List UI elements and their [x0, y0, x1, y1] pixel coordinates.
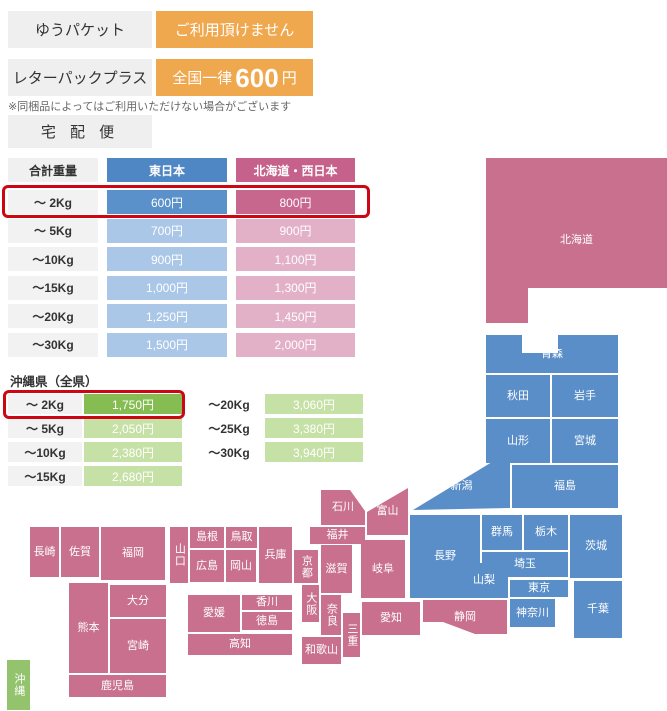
map-region-fukushima: 福島	[512, 465, 618, 508]
map-region-label: 宮崎	[127, 640, 149, 653]
map-region-yamaguchi: 山口	[170, 527, 188, 583]
map-region-label: 北海道	[560, 234, 593, 247]
map-region-label: 岩手	[574, 390, 596, 403]
map-region-tokushima: 徳島	[242, 612, 292, 630]
map-region-kumamoto: 熊本	[69, 583, 108, 673]
map-region-fukuoka: 福岡	[101, 527, 165, 580]
map-region-label: 岐阜	[372, 563, 394, 576]
map-region-label: 長崎	[34, 546, 56, 559]
map-region-fukui: 福井	[310, 527, 365, 544]
map-region-label: 奈良	[325, 603, 338, 627]
map-region-label: 群馬	[491, 526, 513, 539]
map-region-kyoto: 京都	[294, 550, 318, 583]
map-region-nara: 奈良	[321, 595, 341, 635]
map-region-label: 静岡	[454, 611, 476, 624]
japan-map: 北海道青森秋田岩手山形宮城福島新潟群馬栃木茨城埼玉山梨東京神奈川千葉長野富山石川…	[0, 0, 667, 711]
map-region-saga: 佐賀	[61, 527, 99, 577]
map-region-label: 佐賀	[69, 546, 91, 559]
map-region-label: 青森	[541, 348, 563, 361]
map-region-okayama: 岡山	[226, 550, 256, 582]
map-region-hokkaido: 北海道	[486, 158, 667, 323]
map-region-label: 大分	[127, 595, 149, 608]
map-region-label: 高知	[229, 638, 251, 651]
map-region-iwate: 岩手	[552, 375, 618, 417]
map-region-label: 徳島	[256, 615, 278, 628]
map-region-kanagawa: 神奈川	[510, 599, 555, 627]
map-region-label: 埼玉	[514, 558, 536, 571]
map-region-shimane: 島根	[190, 527, 224, 548]
map-region-label: 兵庫	[265, 549, 287, 562]
map-region-label: 鳥取	[231, 531, 253, 544]
map-region-label: 滋賀	[326, 563, 348, 576]
map-region-ibaraki: 茨城	[570, 515, 622, 578]
map-region-ishikawa: 石川	[321, 490, 365, 525]
map-region-ehime: 愛媛	[188, 595, 240, 632]
map-region-akita: 秋田	[486, 375, 550, 417]
map-region-label: 新潟	[451, 480, 473, 493]
map-region-shizuoka: 静岡	[423, 600, 507, 634]
map-region-label: 三重	[345, 623, 358, 647]
map-region-label: 和歌山	[305, 644, 338, 657]
map-region-label: 香川	[256, 596, 278, 609]
map-region-label: 東京	[528, 582, 550, 595]
map-region-label: 福島	[554, 480, 576, 493]
map-region-label: 鹿児島	[101, 680, 134, 693]
map-region-label: 広島	[196, 560, 218, 573]
map-region-mie: 三重	[343, 613, 360, 657]
map-region-label: 沖縄	[12, 673, 25, 697]
map-region-osaka: 大阪	[302, 585, 319, 622]
map-region-miyagi: 宮城	[552, 419, 618, 463]
map-region-yamagata: 山形	[486, 419, 550, 463]
map-region-label: 愛媛	[203, 607, 225, 620]
map-region-okinawa: 沖縄	[7, 660, 30, 710]
map-region-label: 茨城	[585, 540, 607, 553]
map-region-label: 大阪	[304, 592, 317, 616]
map-region-gunma: 群馬	[482, 515, 522, 550]
map-region-aomori: 青森	[486, 335, 618, 373]
map-region-label: 熊本	[78, 622, 100, 635]
map-region-nagasaki: 長崎	[30, 527, 59, 577]
map-region-label: 栃木	[535, 526, 557, 539]
map-region-label: 石川	[332, 501, 354, 514]
map-region-niigata: 新潟	[413, 462, 510, 510]
map-region-label: 山形	[507, 435, 529, 448]
map-region-label: 岡山	[230, 560, 252, 573]
map-region-toyama: 富山	[367, 488, 408, 535]
map-region-label: 山梨	[473, 574, 495, 587]
map-region-miyazaki: 宮崎	[110, 619, 166, 673]
map-region-chiba: 千葉	[574, 581, 622, 638]
map-region-label: 島根	[196, 531, 218, 544]
map-region-tottori: 鳥取	[226, 527, 257, 548]
map-region-hyogo: 兵庫	[259, 527, 292, 583]
map-region-oita: 大分	[110, 585, 166, 617]
map-region-label: 福岡	[122, 547, 144, 560]
map-region-label: 秋田	[507, 390, 529, 403]
map-region-label: 京都	[300, 555, 313, 579]
map-region-hiroshima: 広島	[190, 550, 224, 582]
map-region-kagoshima: 鹿児島	[69, 675, 166, 697]
map-region-label: 宮城	[574, 435, 596, 448]
map-region-aichi: 愛知	[362, 602, 420, 635]
map-region-yamanashi: 山梨	[460, 563, 508, 598]
map-region-kagawa: 香川	[242, 595, 292, 610]
map-region-label: 千葉	[587, 603, 609, 616]
map-region-label: 福井	[327, 529, 349, 542]
map-region-label: 愛知	[380, 612, 402, 625]
map-region-label: 山口	[173, 543, 186, 567]
map-region-shiga: 滋賀	[321, 545, 352, 593]
map-region-label: 富山	[377, 505, 399, 518]
map-region-tokyo: 東京	[510, 580, 568, 597]
map-region-label: 神奈川	[516, 607, 549, 620]
map-region-kochi: 高知	[188, 634, 292, 655]
map-region-label: 長野	[434, 550, 456, 563]
map-region-wakayama: 和歌山	[302, 637, 341, 664]
map-region-gifu: 岐阜	[361, 540, 405, 598]
map-region-tochigi: 栃木	[524, 515, 568, 550]
